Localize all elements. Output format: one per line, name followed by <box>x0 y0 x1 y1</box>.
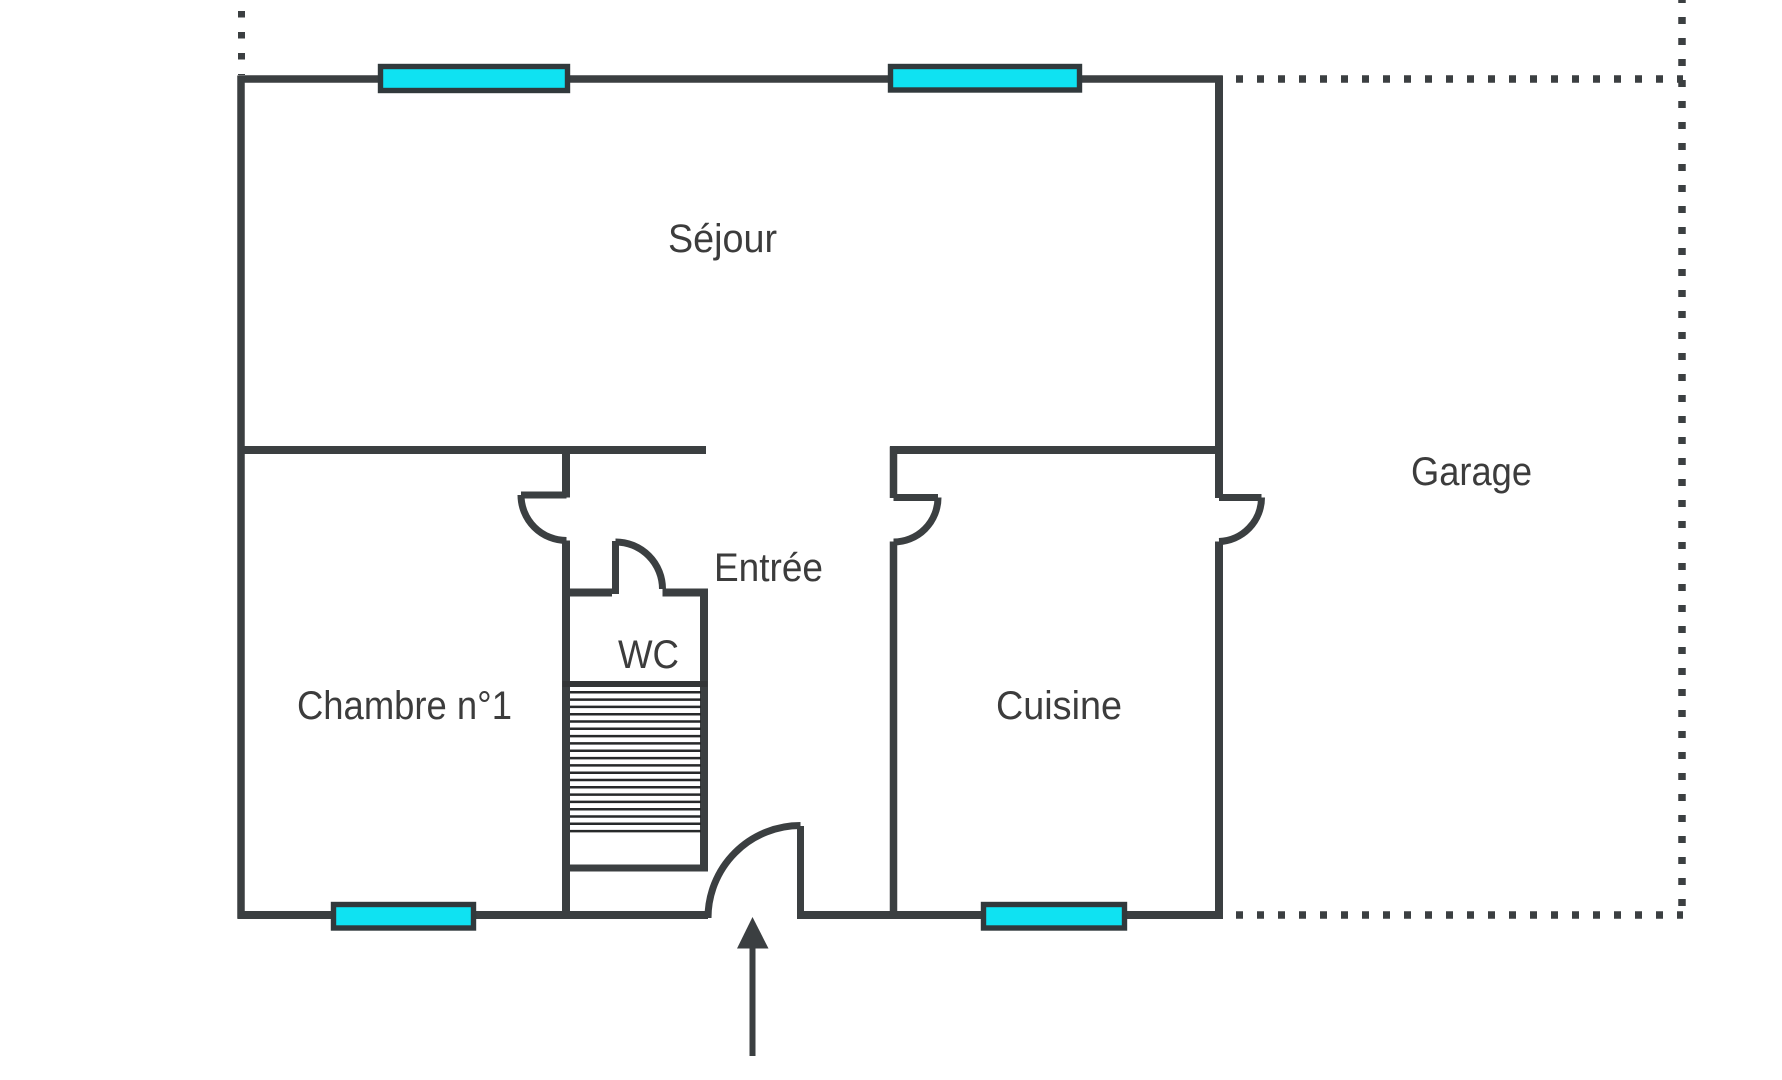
svg-text:Entrée: Entrée <box>714 546 823 590</box>
svg-text:WC: WC <box>618 633 679 677</box>
svg-text:Séjour: Séjour <box>668 217 777 261</box>
svg-text:Cuisine: Cuisine <box>996 684 1122 728</box>
svg-text:Garage: Garage <box>1411 450 1532 494</box>
svg-text:Chambre n°1: Chambre n°1 <box>297 684 512 728</box>
